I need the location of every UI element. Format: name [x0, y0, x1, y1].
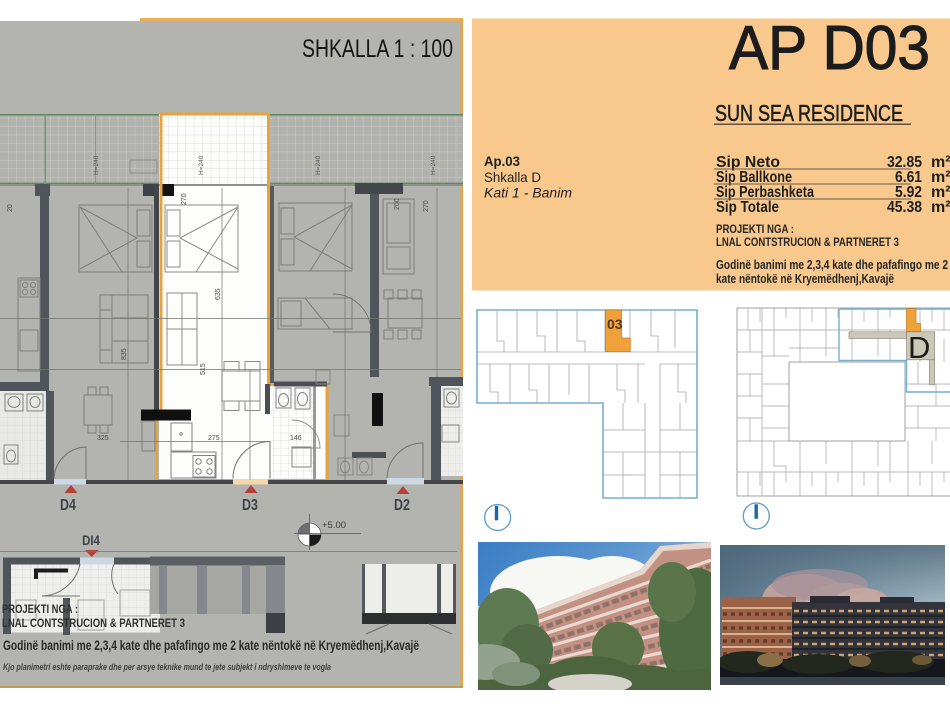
svg-text:146: 146	[290, 435, 302, 442]
svg-text:Kati 1 - Banim: Kati 1 - Banim	[484, 186, 572, 201]
svg-text:D4: D4	[60, 497, 76, 515]
svg-text:H=240: H=240	[93, 155, 100, 175]
svg-text:Godinë banimi me 2,3,4 kate dh: Godinë banimi me 2,3,4 kate dhe pafafing…	[716, 257, 948, 272]
svg-text:Shkalla D: Shkalla D	[484, 169, 541, 185]
svg-text:835: 835	[121, 348, 128, 360]
svg-text:635: 635	[215, 288, 222, 300]
svg-text:270: 270	[181, 193, 188, 205]
svg-text:D2: D2	[394, 497, 410, 515]
svg-text:Sip Totale: Sip Totale	[716, 199, 779, 216]
svg-text:PROJEKTI NGA :: PROJEKTI NGA :	[716, 224, 794, 236]
svg-text:AP D03: AP D03	[729, 14, 930, 83]
svg-text:H=240: H=240	[430, 155, 437, 175]
svg-text:325: 325	[97, 435, 109, 442]
svg-text:270: 270	[423, 200, 430, 212]
svg-text:H=240: H=240	[315, 155, 322, 175]
svg-text:200: 200	[394, 198, 401, 210]
svg-text:m²: m²	[931, 199, 950, 216]
svg-text:kate nëntokë në Kryemëdhenj,Ka: kate nëntokë në Kryemëdhenj,Kavajë	[716, 271, 894, 286]
svg-text:Ap.03: Ap.03	[484, 153, 520, 169]
svg-text:Kjo planimetri eshte paraprake: Kjo planimetri eshte paraprake dhe per a…	[3, 662, 331, 672]
svg-text:SHKALLA 1 : 100: SHKALLA 1 : 100	[302, 35, 453, 63]
svg-text:515: 515	[200, 363, 207, 375]
svg-text:PROJEKTI NGA :: PROJEKTI NGA :	[2, 602, 78, 616]
svg-text:D3: D3	[242, 497, 258, 515]
svg-text:LNAL CONTSTRUCION & PARTNERET: LNAL CONTSTRUCION & PARTNERET 3	[2, 616, 185, 630]
svg-text:DI4: DI4	[82, 533, 100, 548]
svg-text:LNAL CONTSTRUCION & PARTNERET: LNAL CONTSTRUCION & PARTNERET 3	[716, 237, 899, 249]
svg-text:H=240: H=240	[198, 155, 205, 175]
svg-text:+5.00: +5.00	[322, 520, 346, 531]
svg-text:SUN SEA RESIDENCE: SUN SEA RESIDENCE	[715, 100, 903, 126]
svg-text:275: 275	[208, 435, 220, 442]
svg-text:45.38: 45.38	[887, 199, 922, 216]
svg-text:20: 20	[7, 204, 14, 212]
svg-text:Godinë banimi me 2,3,4 kate dh: Godinë banimi me 2,3,4 kate dhe pafafing…	[3, 637, 419, 653]
svg-text:D: D	[908, 330, 930, 365]
svg-text:03: 03	[607, 316, 623, 332]
